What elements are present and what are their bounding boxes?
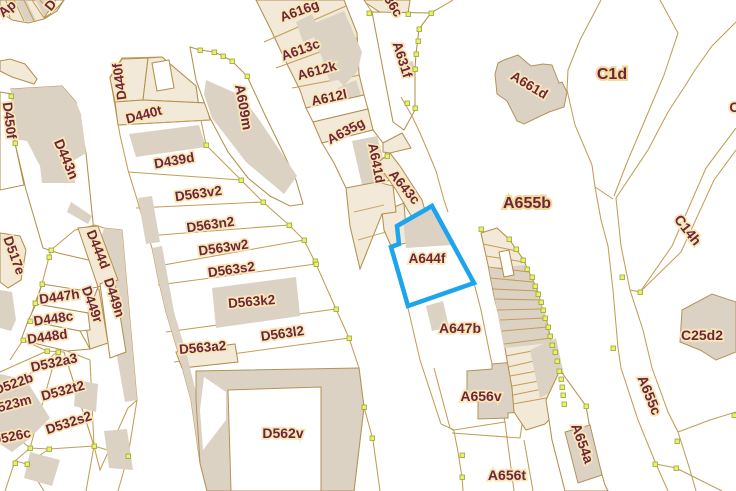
svg-text:C2: C2 [729,100,736,115]
svg-text:A655b: A655b [503,195,551,212]
svg-text:C1d: C1d [597,66,627,83]
svg-text:A656t: A656t [488,467,526,483]
svg-text:A647b: A647b [439,320,481,336]
svg-text:A644f: A644f [409,251,446,266]
svg-text:D562v: D562v [262,425,303,441]
svg-text:A656v: A656v [460,388,501,404]
svg-text:C25d2: C25d2 [681,327,723,343]
